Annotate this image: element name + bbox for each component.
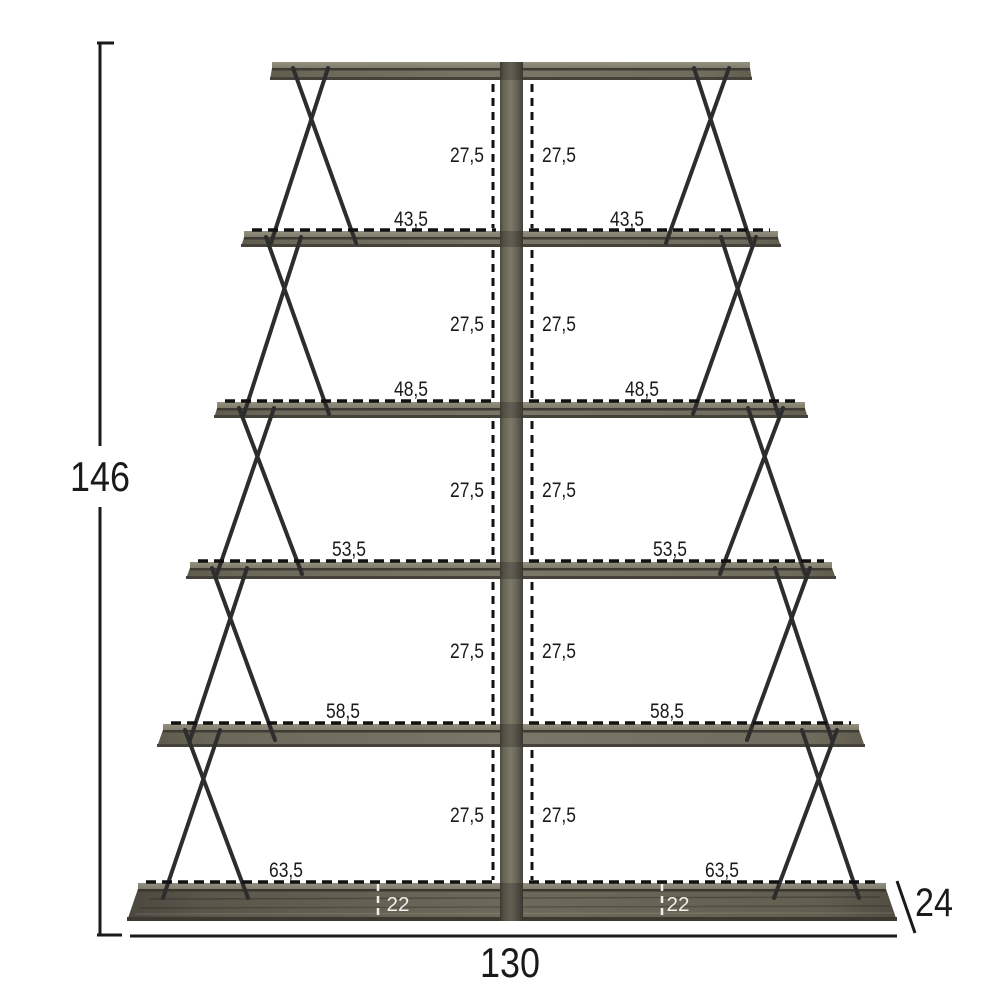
wire-brace (163, 730, 220, 898)
wire-brace (693, 237, 756, 414)
shelf-width-dim-label: 43,5 (394, 208, 428, 231)
wire-brace (293, 68, 356, 243)
shelf-width-dim-label: 48,5 (625, 378, 659, 401)
wire-brace (190, 568, 247, 740)
gap-dim-label: 27,5 (542, 479, 576, 502)
gap-dim-label: 27,5 (542, 144, 576, 167)
wire-brace (185, 730, 248, 898)
wire-brace (666, 68, 729, 243)
depth-dim-line (897, 881, 915, 933)
gap-dim-label: 27,5 (450, 640, 484, 663)
gap-dim-label: 27,5 (450, 313, 484, 336)
base-inset-dim-label: 22 (667, 894, 690, 916)
gap-dim-label: 27,5 (450, 479, 484, 502)
column-shelf-junction (500, 883, 523, 921)
shelf-width-dim-label: 58,5 (650, 700, 684, 723)
base-inset-dim-label: 22 (387, 894, 410, 916)
shelf-width-dim-label: 43,5 (610, 208, 644, 231)
column-shelf-junction (500, 724, 523, 747)
column-shelf-junction (500, 562, 523, 579)
bookcase-dimension-drawing: 146 130 24 27,5 27,5 27,5 27,5 27,5 27,5… (0, 0, 1000, 1000)
height-dim-label: 146 (70, 453, 130, 500)
wire-brace (244, 237, 301, 414)
depth-dim-label: 24 (915, 881, 953, 925)
shelf-width-dim-label: 63,5 (705, 859, 739, 882)
shelf-width-dim-label: 53,5 (332, 538, 366, 561)
wire-brace (266, 237, 329, 414)
wire-brace (775, 568, 832, 740)
wire-brace (271, 68, 328, 243)
column-shelf-junction (500, 231, 523, 247)
gap-dim-label: 27,5 (542, 804, 576, 827)
wire-brace (747, 568, 810, 740)
wire-brace (212, 568, 275, 740)
gap-dim-label: 27,5 (542, 313, 576, 336)
wire-brace (802, 730, 859, 898)
wire-brace (694, 68, 751, 243)
gap-dim-label: 27,5 (542, 640, 576, 663)
shelf-width-dim-label: 58,5 (326, 700, 360, 723)
wire-brace (720, 408, 783, 574)
wire-brace (774, 730, 837, 898)
width-dim-label: 130 (480, 939, 540, 986)
product-dimension-diagram: 146 130 24 27,5 27,5 27,5 27,5 27,5 27,5… (0, 0, 1000, 1000)
shelf-width-dim-label: 63,5 (269, 859, 303, 882)
gap-dim-label: 27,5 (450, 804, 484, 827)
shelf-width-dim-label: 53,5 (653, 538, 687, 561)
center-column-face (500, 62, 523, 921)
wire-brace (721, 237, 778, 414)
column-shelf-junction (500, 62, 523, 80)
gap-dim-label: 27,5 (450, 144, 484, 167)
wire-brace (217, 408, 274, 574)
center-column (500, 62, 523, 921)
shelf-width-dim-label: 48,5 (394, 378, 428, 401)
column-shelf-junction (500, 402, 523, 418)
wire-brace (748, 408, 805, 574)
wire-brace (239, 408, 302, 574)
